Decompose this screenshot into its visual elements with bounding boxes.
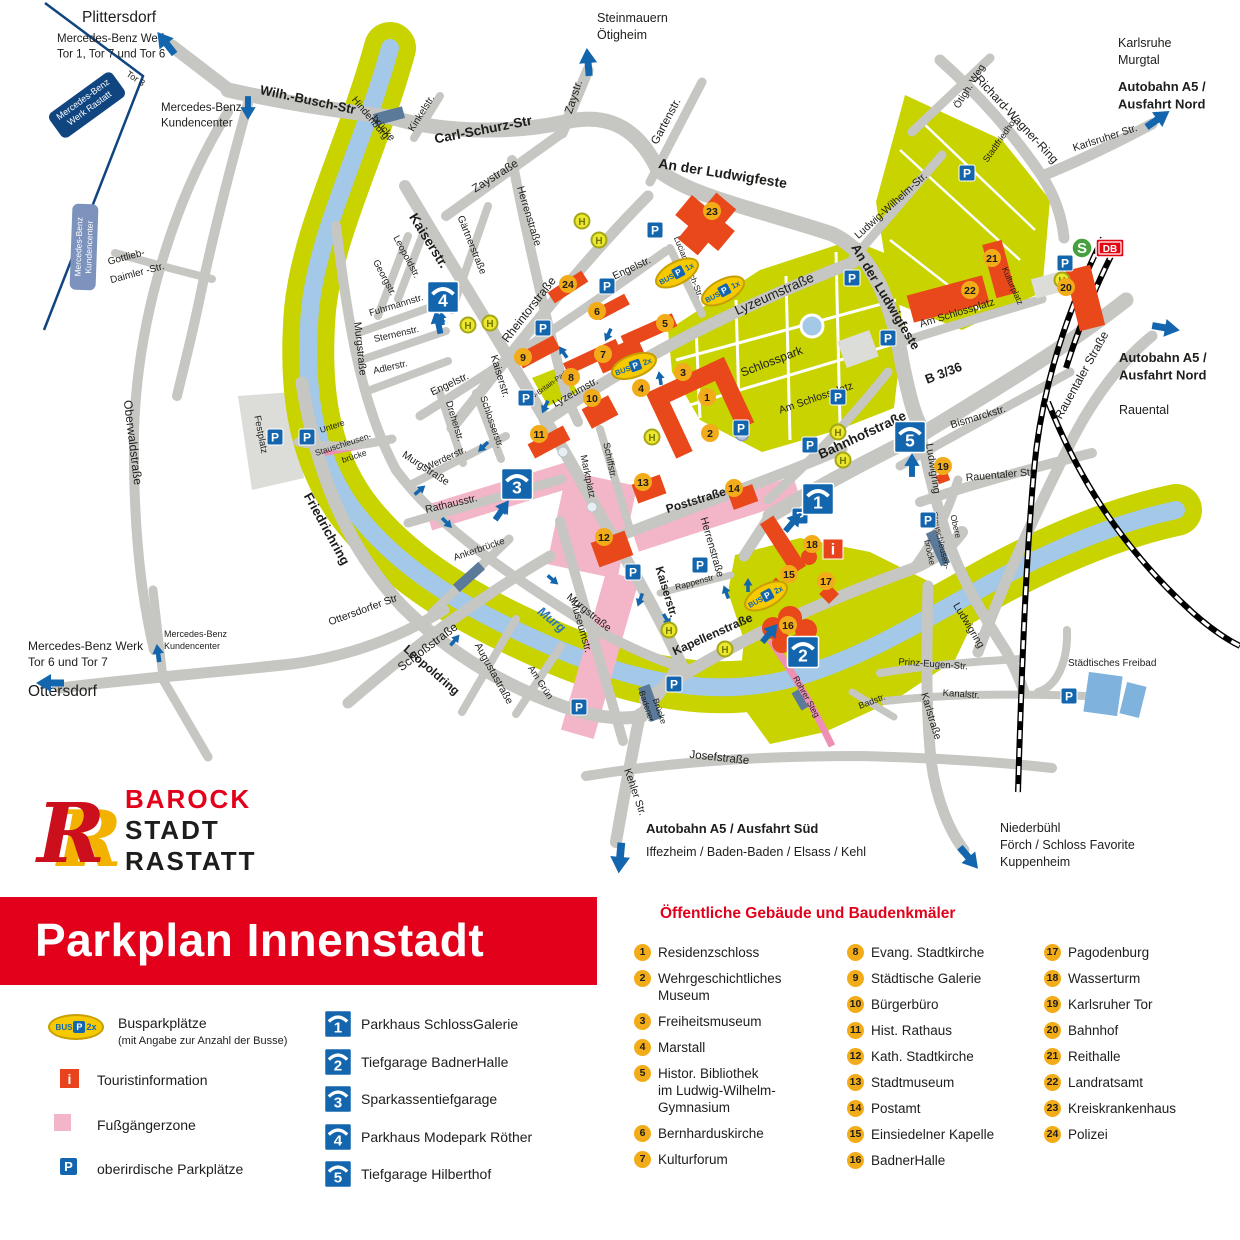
bus-oval-count: 2x	[86, 1022, 96, 1032]
freibad-building	[1119, 682, 1146, 718]
street-label: Rappenstr	[674, 572, 715, 592]
street-label: B 3/36	[923, 359, 964, 387]
bus-stop-icon: H	[645, 430, 660, 445]
poi-marker: 8	[562, 368, 580, 386]
poi-marker: 1	[698, 388, 716, 406]
map-text-line: Tor 1, Tor 7 und Tor 6	[57, 49, 165, 61]
parking-icon-letter: P	[963, 167, 971, 181]
poi-marker: 12	[595, 528, 613, 546]
bus-stop-icon: H	[662, 623, 677, 638]
legend-garage-row: 4Parkhaus Modepark Röther	[324, 1123, 532, 1151]
bus-stop-letter: H	[839, 456, 846, 467]
map-text-line: Ausfahrt Nord	[1119, 368, 1206, 383]
pedestrian-zone-icon	[54, 1114, 71, 1131]
poi-item-label: Wasserturm	[1068, 970, 1140, 987]
poi-list-item: 19Karlsruher Tor	[1044, 996, 1240, 1013]
poi-item-label: Kath. Stadtkirche	[871, 1048, 974, 1065]
map-text-line: Autobahn A5 / Ausfahrt Süd	[646, 821, 818, 836]
parking-icon-letter: P	[924, 514, 932, 528]
parking-icon: P	[647, 222, 663, 238]
garage-icon-number: 4	[438, 291, 448, 311]
direction-arrow	[609, 842, 631, 874]
poi-list-item: 17Pagodenburg	[1044, 944, 1240, 961]
poi-item-number: 16	[847, 1152, 864, 1169]
poi-marker-number: 4	[638, 383, 644, 395]
poi-item-number: 2	[634, 970, 651, 987]
map-text-block: Mercedes-BenzKundencenter	[164, 629, 228, 651]
road	[586, 756, 1052, 776]
bus-stop-letter: H	[834, 428, 841, 439]
freibad-building	[1083, 672, 1122, 716]
poi-marker-number: 10	[586, 393, 598, 405]
legend-garage-label: Tiefgarage BadnerHalle	[361, 1054, 508, 1070]
garage-icon-number: 3	[512, 478, 522, 498]
map-text-line: Kundencenter	[161, 118, 233, 130]
poi-marker: 10	[583, 389, 601, 407]
map-text-line: Mercedes-Benz Werk	[28, 639, 144, 653]
poi-item-number: 17	[1044, 944, 1061, 961]
parking-icon: P	[880, 330, 896, 346]
poi-marker-number: 23	[706, 206, 718, 218]
poi-column: 17Pagodenburg18Wasserturm19Karlsruher To…	[1044, 944, 1240, 1152]
poi-item-label: Polizei	[1068, 1126, 1108, 1143]
legend-garage-label: Parkhaus SchlossGalerie	[361, 1016, 518, 1032]
sbahn-letter: S	[1077, 240, 1087, 257]
fountain	[587, 502, 597, 512]
map-root: Mercedes-BenzWerk RastattMercedes-BenzKu…	[28, 3, 1240, 875]
poi-item-label: Reithalle	[1068, 1048, 1121, 1065]
fountain	[558, 447, 568, 457]
poi-item-label: Bahnhof	[1068, 1022, 1118, 1039]
poi-marker: 3	[674, 363, 692, 381]
poi-marker-number: 19	[937, 461, 949, 473]
parking-icon: P	[666, 676, 682, 692]
poi-marker: 20	[1057, 278, 1075, 296]
poi-marker: 16	[779, 616, 797, 634]
parking-icon-letter: P	[696, 559, 704, 573]
poi-column: 1Residenzschloss2WehrgeschichtlichesMuse…	[634, 944, 834, 1177]
parking-icon-letter: P	[303, 431, 311, 445]
tourist-info-icon: i	[823, 539, 843, 559]
poi-marker: 15	[780, 565, 798, 583]
svg-text:R: R	[35, 786, 105, 878]
map-text-line: Kundencenter	[164, 641, 220, 651]
poi-item-number: 23	[1044, 1100, 1061, 1117]
poi-item-label: Histor. Bibliothekim Ludwig-Wilhelm-Gymn…	[658, 1065, 776, 1116]
poi-list-item: 3Freiheitsmuseum	[634, 1013, 834, 1030]
poi-item-label: Postamt	[871, 1100, 921, 1117]
oneway-arrow	[545, 572, 562, 588]
garage-icon: 5	[324, 1160, 352, 1188]
garage-icon-number: 5	[334, 1169, 342, 1186]
map-text-line: Mercedes-Benz	[164, 629, 228, 639]
map-text-line: Ausfahrt Nord	[1118, 97, 1205, 112]
map-text-block: Autobahn A5 / Ausfahrt Süd	[646, 821, 818, 836]
legend-item-label: Touristinformation	[97, 1072, 208, 1088]
poi-marker-number: 11	[533, 429, 544, 441]
tourist-info-letter: i	[831, 542, 835, 559]
garage-icon: 1	[803, 484, 834, 515]
tourist-info-icon: i	[60, 1069, 79, 1088]
poi-item-number: 24	[1044, 1126, 1061, 1143]
map-text-line: Plittersdorf	[82, 9, 157, 26]
poi-item-number: 18	[1044, 970, 1061, 987]
poi-list-item: 21Reithalle	[1044, 1048, 1240, 1065]
poi-item-number: 6	[634, 1125, 651, 1142]
barock-stadt-rastatt-logo: R R BAROCK STADT RASTATT	[35, 786, 365, 882]
poi-marker: 9	[514, 348, 532, 366]
garage-icon-number: 2	[334, 1057, 342, 1074]
poi-item-number: 1	[634, 944, 651, 961]
garage-icon: 1	[324, 1010, 352, 1038]
poi-list-title: Öffentliche Gebäude und Baudenkmäler	[660, 905, 955, 923]
map-text-line: Rauental	[1119, 403, 1169, 417]
road	[1038, 630, 1067, 692]
parking-icon: P	[1057, 255, 1073, 271]
poi-item-label: Einsiedelner Kapelle	[871, 1126, 994, 1143]
legend-item-label: oberirdische Parkplätze	[97, 1161, 243, 1177]
poi-column: 8Evang. Stadtkirche9Städtische Galerie10…	[847, 944, 1047, 1178]
poi-marker: 22	[961, 281, 979, 299]
bus-stop-icon: H	[483, 316, 498, 331]
logo-line-3: RASTATT	[125, 846, 256, 877]
poi-marker-number: 6	[594, 306, 600, 318]
street-label: Schiffstr.	[600, 442, 618, 480]
road	[885, 695, 1086, 701]
poi-item-label: Bürgerbüro	[871, 996, 939, 1013]
poi-marker-number: 13	[637, 477, 649, 489]
bus-stop-letter: H	[464, 321, 471, 332]
legend-bus-label: Busparkplätze	[118, 1015, 207, 1031]
poi-marker: 14	[725, 479, 743, 497]
map-text-line: Mercedes-Benz	[161, 102, 242, 114]
parking-icon-letter: P	[1061, 257, 1069, 271]
bus-stop-icon: H	[831, 425, 846, 440]
poi-list-item: 12Kath. Stadtkirche	[847, 1048, 1047, 1065]
parking-icon: P	[692, 557, 708, 573]
garage-icon: 4	[428, 282, 459, 313]
db-letters: DB	[1103, 244, 1117, 255]
parking-icon-letter: P	[884, 332, 892, 346]
poi-marker: 18	[803, 535, 821, 553]
bus-stop-letter: H	[648, 433, 655, 444]
poi-marker: 2	[701, 424, 719, 442]
poi-marker-number: 1	[704, 392, 710, 404]
poi-marker: 13	[634, 473, 652, 491]
poi-item-label: Residenzschloss	[658, 944, 759, 961]
poi-list-item: 9Städtische Galerie	[847, 970, 1047, 987]
poi-item-label: Landratsamt	[1068, 1074, 1143, 1091]
poi-marker: 4	[632, 379, 650, 397]
poi-item-number: 3	[634, 1013, 651, 1030]
parking-icon: P	[535, 320, 551, 336]
parking-icon: P	[959, 165, 975, 181]
garage-icon-number: 4	[334, 1132, 343, 1149]
poi-marker-number: 2	[707, 428, 713, 440]
poi-list-item: 2WehrgeschichtlichesMuseum	[634, 970, 834, 1004]
bus-stop-icon: H	[575, 214, 590, 229]
parking-icon: P	[844, 270, 860, 286]
map-text-line: Tor 6 und Tor 7	[28, 655, 108, 669]
parking-icon-letter: P	[670, 678, 678, 692]
parking-icon: P	[1061, 688, 1077, 704]
poi-list-item: 23Kreiskrankenhaus	[1044, 1100, 1240, 1117]
map-text-block: Städtisches Freibad	[1068, 658, 1156, 669]
poi-item-number: 20	[1044, 1022, 1061, 1039]
poi-list-item: 22Landratsamt	[1044, 1074, 1240, 1091]
poi-marker: 11	[530, 425, 548, 443]
park-pond	[801, 315, 823, 337]
legend-garage-label: Sparkassentiefgarage	[361, 1091, 497, 1107]
map-text-line: Niederbühl	[1000, 821, 1060, 835]
poi-item-label: Kulturforum	[658, 1151, 728, 1168]
poi-list-item: 16BadnerHalle	[847, 1152, 1047, 1169]
db-logo: DB	[1096, 239, 1124, 257]
road	[162, 678, 208, 757]
bus-stop-icon: H	[592, 233, 607, 248]
parking-icon-letter: P	[806, 439, 814, 453]
logo-line-1: BAROCK	[125, 784, 256, 815]
poi-item-number: 14	[847, 1100, 864, 1117]
poi-marker-number: 17	[820, 576, 832, 588]
bus-parking-icon: BUS P 2x	[48, 1014, 104, 1040]
poi-list-item: 20Bahnhof	[1044, 1022, 1240, 1039]
map-text-block: Autobahn A5 /Ausfahrt Nord	[1119, 350, 1207, 383]
garage-icon: 5	[895, 422, 926, 453]
bus-oval-bus-text: BUS	[56, 1023, 73, 1032]
mercedes-badge-text: Kundencenter	[83, 220, 95, 273]
poi-item-label: Stadtmuseum	[871, 1074, 954, 1091]
parking-icon-letter: P	[848, 272, 856, 286]
poi-item-number: 7	[634, 1151, 651, 1168]
poi-marker-number: 18	[806, 539, 818, 551]
mercedes-badge: Mercedes-BenzWerk Rastatt	[47, 70, 128, 140]
map-text-line: Murgtal	[1118, 53, 1160, 67]
parking-icon: P	[625, 564, 641, 580]
poi-marker-number: 5	[662, 318, 668, 330]
map-text-block: Autobahn A5 /Ausfahrt Nord	[1118, 79, 1206, 112]
map-text-block: Plittersdorf	[82, 9, 157, 26]
garage-icon: 4	[325, 1123, 352, 1150]
parking-icon: P	[571, 699, 587, 715]
parking-icon-letter: P	[539, 322, 547, 336]
poi-item-number: 11	[847, 1022, 864, 1039]
parking-icon-letter: P	[629, 566, 637, 580]
garage-icon: 2	[788, 637, 819, 668]
poi-list-item: 14Postamt	[847, 1100, 1047, 1117]
garage-icon: 3	[502, 469, 533, 500]
poi-item-label: Kreiskrankenhaus	[1068, 1100, 1176, 1117]
poi-item-number: 13	[847, 1074, 864, 1091]
parking-icon: P	[299, 429, 315, 445]
poi-list-item: 8Evang. Stadtkirche	[847, 944, 1047, 961]
map-text-line: Karlsruhe	[1118, 36, 1172, 50]
poi-marker: 7	[594, 345, 612, 363]
parking-icon-letter: P	[522, 392, 530, 406]
poi-item-number: 9	[847, 970, 864, 987]
surface-parking-icon: P	[60, 1158, 77, 1175]
parking-icon: P	[830, 389, 846, 405]
road	[408, 479, 562, 523]
map-text-line: Städtisches Freibad	[1068, 658, 1156, 669]
parking-icon: P	[599, 278, 615, 294]
legend-garage-row: 1Parkhaus SchlossGalerie	[324, 1010, 518, 1038]
parking-icon: P	[267, 429, 283, 445]
bus-stop-letter: H	[486, 319, 493, 330]
parking-icon-letter: P	[271, 431, 279, 445]
poi-item-label: WehrgeschichtlichesMuseum	[658, 970, 782, 1004]
map-text-line: Steinmauern	[597, 11, 668, 25]
poi-list-item: 7Kulturforum	[634, 1151, 834, 1168]
poi-marker: 17	[817, 572, 835, 590]
legend-garage-row: 2Tiefgarage BadnerHalle	[324, 1048, 508, 1076]
poi-item-number: 21	[1044, 1048, 1061, 1065]
poi-item-number: 5	[634, 1065, 651, 1082]
poi-marker-number: 9	[520, 352, 526, 364]
poi-marker-number: 14	[728, 483, 740, 495]
garage-icon-number: 5	[905, 431, 915, 451]
poi-list-item: 15Einsiedelner Kapelle	[847, 1126, 1047, 1143]
map-text-line: Mercedes-Benz Werk	[57, 33, 168, 45]
logo-r-glyph: R R	[35, 786, 127, 878]
bus-stop-letter: H	[595, 236, 602, 247]
parking-icon-letter: P	[603, 280, 611, 294]
map-text-block: KarlsruheMurgtal	[1118, 36, 1172, 67]
poi-item-label: Marstall	[658, 1039, 705, 1056]
garage-icon-number: 3	[334, 1094, 342, 1111]
oneway-arrow	[654, 370, 665, 385]
legend-garage-row: 3Sparkassentiefgarage	[324, 1085, 497, 1113]
poi-item-label: Karlsruher Tor	[1068, 996, 1153, 1013]
page-title: Parkplan Innenstadt	[0, 897, 597, 983]
poi-marker-number: 12	[598, 532, 610, 544]
poi-marker-number: 21	[986, 253, 998, 265]
poi-marker-number: 20	[1060, 282, 1072, 294]
garage-icon: 2	[325, 1048, 352, 1075]
poi-item-number: 4	[634, 1039, 651, 1056]
poi-list-item: 13Stadtmuseum	[847, 1074, 1047, 1091]
poi-marker: 21	[983, 249, 1001, 267]
map-text-block: Rauental	[1119, 403, 1169, 417]
poi-list-item: 10Bürgerbüro	[847, 996, 1047, 1013]
bus-stop-letter: H	[721, 645, 728, 656]
poi-marker: 23	[703, 202, 721, 220]
poi-marker-number: 8	[568, 372, 574, 384]
poi-item-number: 10	[847, 996, 864, 1013]
poi-item-label: Bernharduskirche	[658, 1125, 764, 1142]
bus-oval-p: P	[73, 1021, 85, 1033]
legend-bus-sublabel: (mit Angabe zur Anzahl der Busse)	[118, 1035, 287, 1047]
poi-marker-number: 7	[600, 349, 606, 361]
parking-icon-letter: P	[1065, 690, 1073, 704]
poi-item-number: 19	[1044, 996, 1061, 1013]
poi-marker: 5	[656, 314, 674, 332]
sbahn-logo: S	[1072, 238, 1092, 258]
parking-icon-letter: P	[737, 422, 745, 436]
garage-icon: 1	[325, 1011, 352, 1038]
garage-icon: 4	[324, 1123, 352, 1151]
poi-marker-number: 15	[783, 569, 795, 581]
garage-icon-number: 1	[334, 1019, 342, 1036]
poi-item-label: Pagodenburg	[1068, 944, 1149, 961]
title-banner: Parkplan Innenstadt	[0, 897, 597, 985]
parking-icon: P	[920, 512, 936, 528]
bus-stop-icon: H	[461, 318, 476, 333]
poi-item-number: 12	[847, 1048, 864, 1065]
mercedes-badge: Mercedes-BenzKundencenter	[70, 204, 99, 291]
legend-item-label: Fußgängerzone	[97, 1117, 196, 1133]
map-text-block: Iffezheim / Baden-Baden / Elsass / Kehl	[646, 845, 866, 859]
map-text-block: NiederbühlFörch / Schloss FavoriteKuppen…	[1000, 821, 1135, 869]
direction-arrow	[578, 47, 598, 76]
map-text-block: Mercedes-Benz WerkTor 1, Tor 7 und Tor 6	[57, 33, 168, 61]
poi-item-number: 8	[847, 944, 864, 961]
poi-list-item: 18Wasserturm	[1044, 970, 1240, 987]
poi-list-item: 11Hist. Rathaus	[847, 1022, 1047, 1039]
bus-stop-letter: H	[665, 626, 672, 637]
city-map: Mercedes-BenzWerk RastattMercedes-BenzKu…	[0, 0, 1240, 893]
poi-item-label: BadnerHalle	[871, 1152, 945, 1169]
poi-item-label: Städtische Galerie	[871, 970, 981, 987]
parking-icon-letter: P	[575, 701, 583, 715]
poi-marker-number: 22	[964, 285, 976, 297]
street-label: Carl-Schurz-Str	[433, 113, 534, 147]
legend-garage-label: Parkhaus Modepark Röther	[361, 1129, 532, 1145]
poi-marker: 6	[588, 302, 606, 320]
street-label: Oberwaldstraße	[121, 399, 145, 486]
poi-list-item: 1Residenzschloss	[634, 944, 834, 961]
garage-icon-number: 2	[798, 646, 808, 666]
map-text-line: Iffezheim / Baden-Baden / Elsass / Kehl	[646, 845, 866, 859]
bus-stop-icon: H	[836, 453, 851, 468]
parking-icon: P	[518, 390, 534, 406]
legend-garage-row: 5Tiefgarage Hilberthof	[324, 1160, 491, 1188]
parking-icon-letter: P	[651, 224, 659, 238]
parkplan-page: Mercedes-BenzWerk RastattMercedes-BenzKu…	[0, 0, 1240, 1240]
garage-icon-number: 1	[813, 493, 823, 513]
map-text-line: Autobahn A5 /	[1119, 350, 1207, 365]
parking-icon: P	[733, 420, 749, 436]
street-label: Tor 3	[125, 69, 147, 88]
map-text-line: Kuppenheim	[1000, 855, 1070, 869]
poi-marker: 19	[934, 457, 952, 475]
bus-stop-letter: H	[578, 217, 585, 228]
garage-icon: 3	[325, 1086, 352, 1113]
legend-garage-label: Tiefgarage Hilberthof	[361, 1166, 491, 1182]
poi-marker-number: 24	[562, 279, 574, 291]
map-text-line: Förch / Schloss Favorite	[1000, 838, 1135, 852]
poi-item-number: 22	[1044, 1074, 1061, 1091]
map-text-block: SteinmauernÖtigheim	[597, 11, 668, 42]
map-text-block: Mercedes-Benz WerkTor 6 und Tor 7	[28, 639, 144, 669]
poi-list-item: 5Histor. Bibliothekim Ludwig-Wilhelm-Gym…	[634, 1065, 834, 1116]
poi-list-item: 24Polizei	[1044, 1126, 1240, 1143]
poi-item-label: Evang. Stadtkirche	[871, 944, 984, 961]
bus-stop-icon: H	[718, 642, 733, 657]
parking-icon: P	[802, 437, 818, 453]
poi-item-label: Freiheitsmuseum	[658, 1013, 762, 1030]
parking-icon-letter: P	[834, 391, 842, 405]
poi-item-label: Hist. Rathaus	[871, 1022, 952, 1039]
poi-list-item: 4Marstall	[634, 1039, 834, 1056]
poi-list-item: 6Bernharduskirche	[634, 1125, 834, 1142]
poi-item-number: 15	[847, 1126, 864, 1143]
street-label: Ottersdorfer Str	[327, 592, 400, 628]
poi-marker: 24	[559, 275, 577, 293]
poi-marker-number: 3	[680, 367, 686, 379]
map-text-line: Ötigheim	[597, 28, 647, 42]
logo-line-2: STADT	[125, 815, 256, 846]
